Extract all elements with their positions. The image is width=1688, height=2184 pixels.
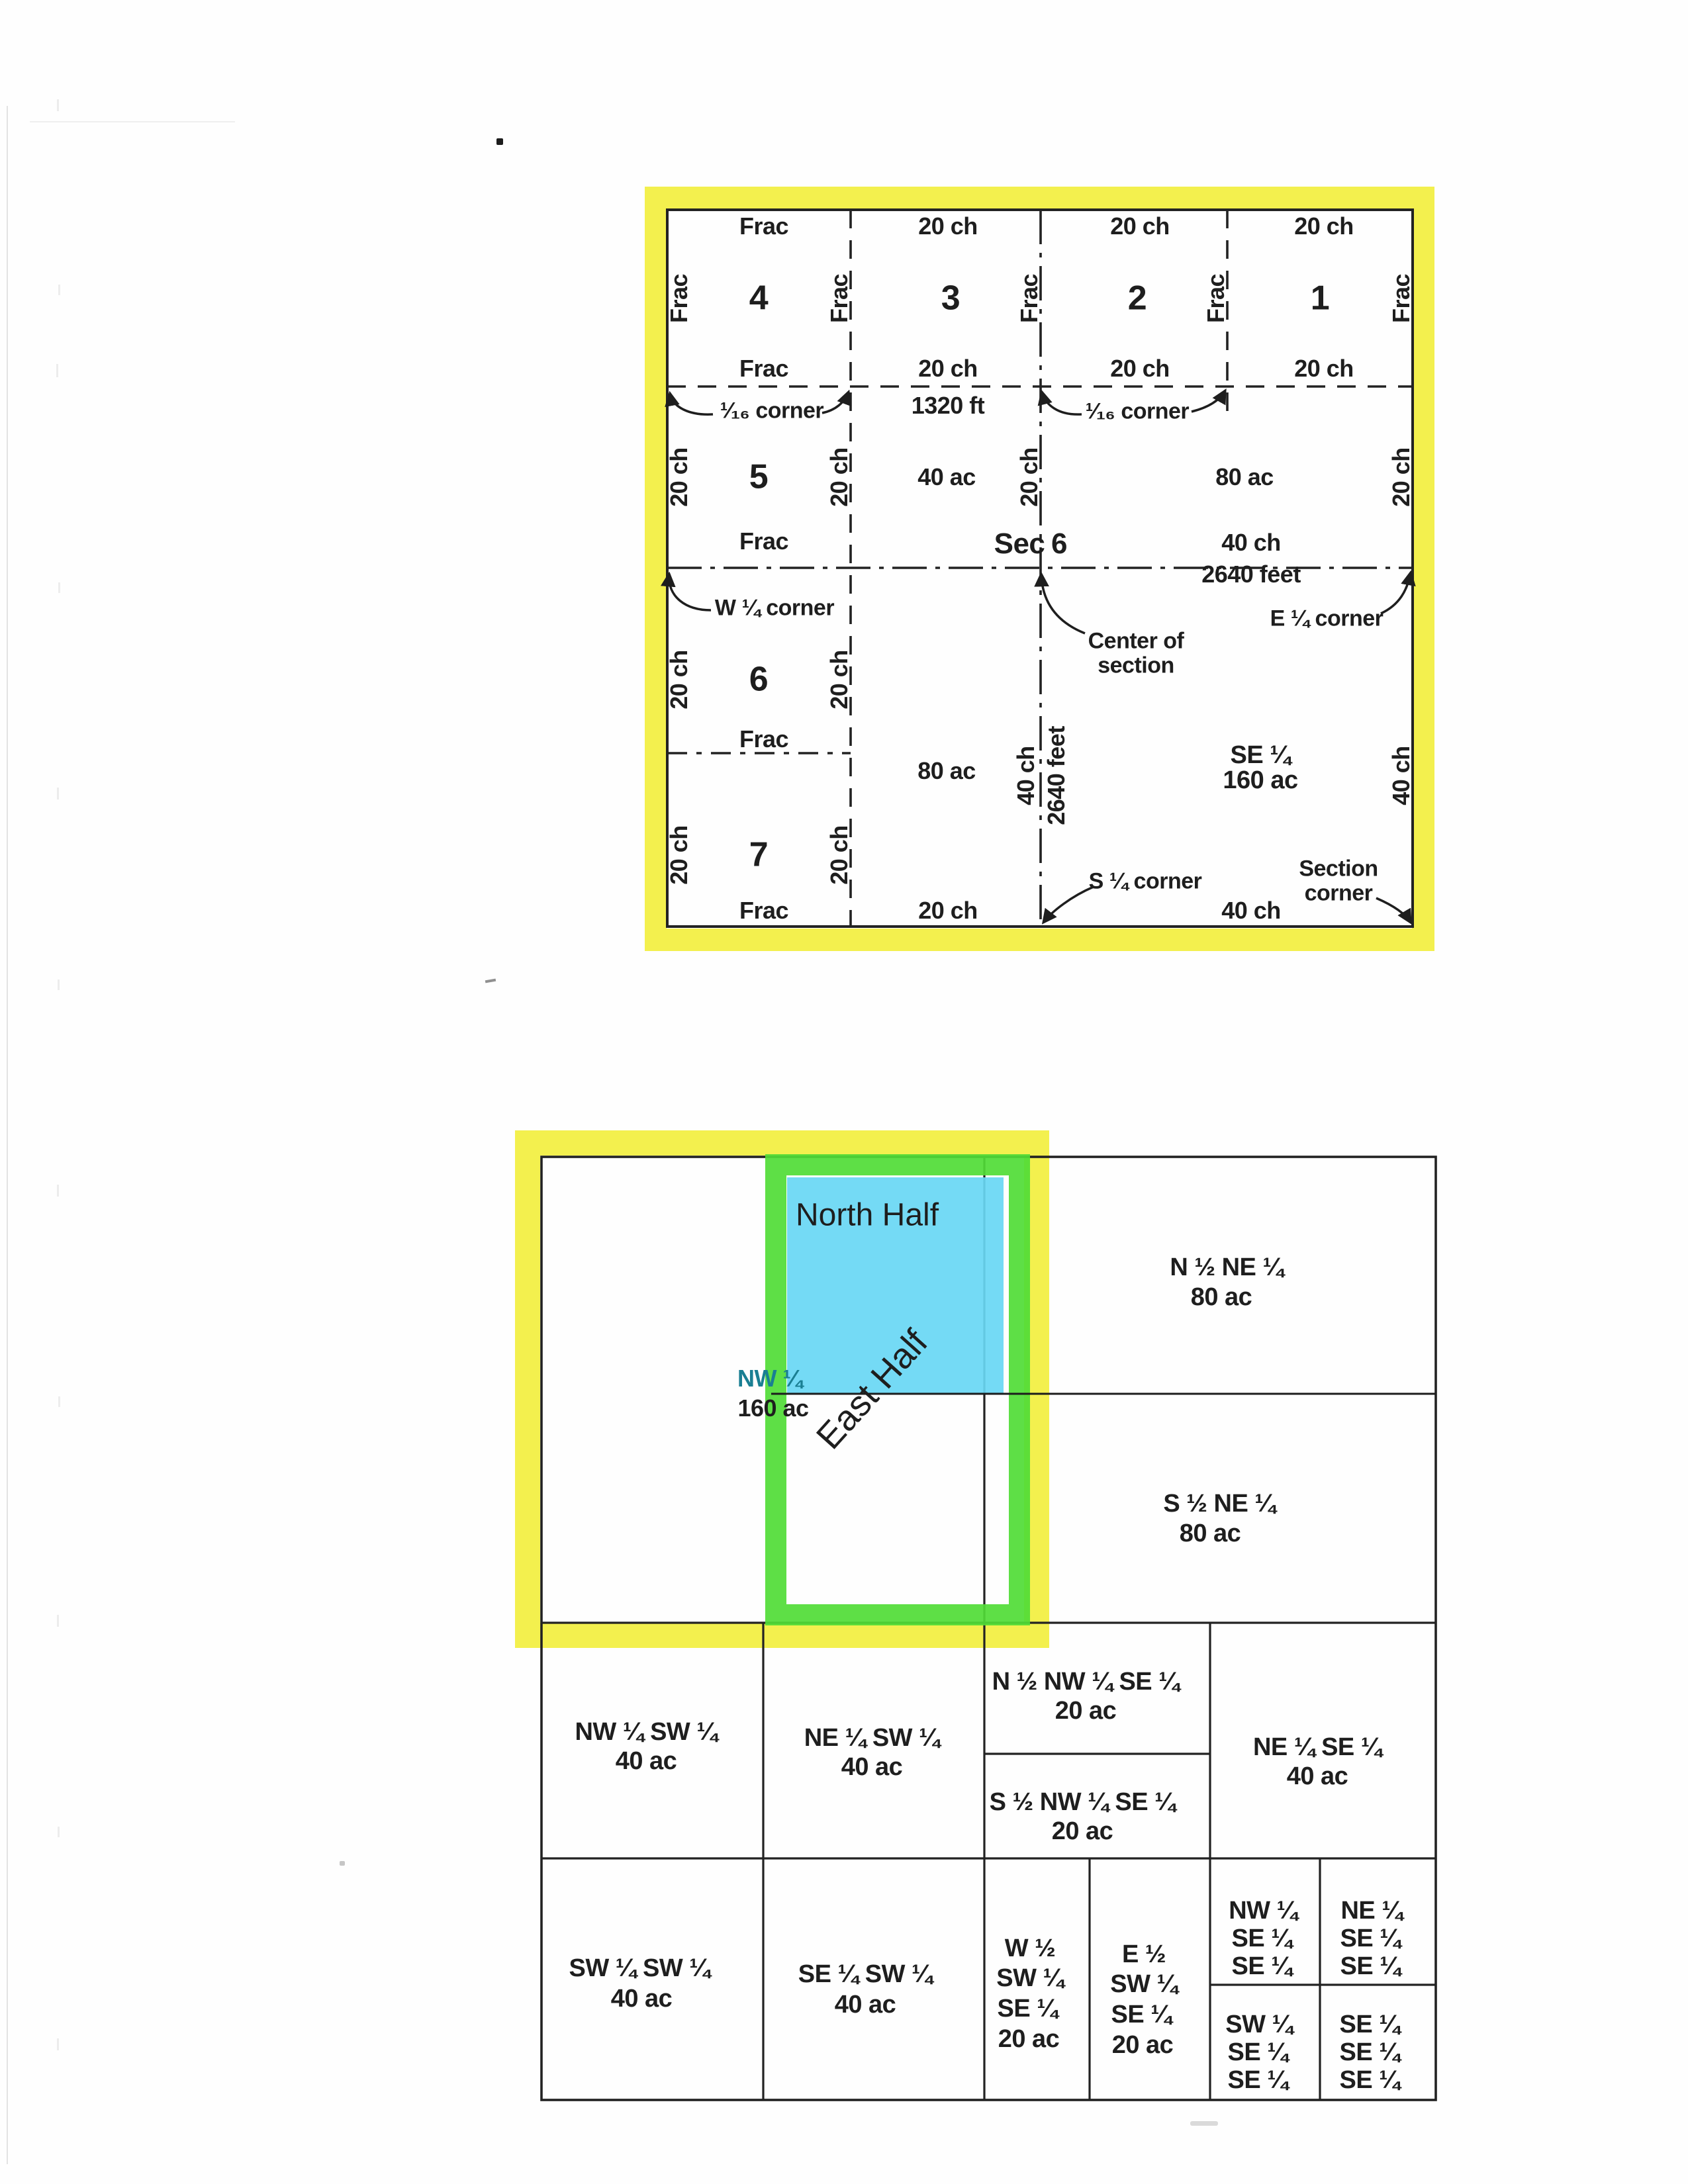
- label-80ac-ne: 80 ac: [1215, 464, 1274, 490]
- label-se-sw-acres: 40 ac: [835, 1991, 896, 2019]
- label-80ac-sw: 80 ac: [917, 758, 976, 784]
- label-20ch-top-lot3: 20 ch: [918, 213, 978, 240]
- label-20ch-vert-v3-row2: 20 ch: [1016, 447, 1043, 507]
- label-20ch-above-sixteenth-2: 20 ch: [1110, 355, 1170, 382]
- label-frac-above-sixteenth: Frac: [739, 355, 788, 382]
- label-lot-5: 5: [749, 458, 768, 496]
- label-sw-sese-2: SE ¼: [1228, 2039, 1288, 2067]
- label-lot-4: 4: [749, 279, 768, 317]
- label-ne-sw-acres: 40 ac: [841, 1754, 903, 1782]
- arrow-e-quarter-corner: [1381, 572, 1411, 614]
- label-section-corner: Section corner: [1295, 857, 1382, 907]
- label-20ch-above-sixteenth-3: 20 ch: [918, 355, 978, 382]
- label-1320ft: 1320 ft: [912, 392, 985, 419]
- label-20ch-vert-v2-row3: 20 ch: [826, 650, 853, 709]
- arrow-sixteenth-corner-e2: [1192, 390, 1225, 412]
- label-s2-ne: S ½ NE ¼: [1163, 1490, 1275, 1518]
- label-ne-sese-1: NE ¼: [1340, 1897, 1402, 1925]
- arrow-center-of-section: [1041, 574, 1085, 633]
- label-w2-line3: SE ¼: [998, 1995, 1058, 2023]
- label-frac-vert-v4: Frac: [1203, 274, 1229, 323]
- label-s2-ne-acres: 80 ac: [1180, 1520, 1241, 1548]
- label-e2-line1: E ½: [1122, 1941, 1166, 1969]
- label-ne-sese-2: SE ¼: [1340, 1925, 1401, 1953]
- label-w2-line2: SW ¼: [996, 1965, 1063, 1993]
- label-w-quarter-corner: W ¼ corner: [715, 596, 834, 620]
- arrow-s-quarter-corner: [1043, 887, 1094, 923]
- label-lot-3: 3: [941, 279, 960, 317]
- label-40ac: 40 ac: [917, 464, 976, 490]
- label-nw-sese-2: SE ¼: [1232, 1925, 1292, 1953]
- label-se-sese-1: SE ¼: [1340, 2011, 1400, 2039]
- label-40ch-bottom: 40 ch: [1221, 897, 1281, 924]
- label-20ch-above-sixteenth-1: 20 ch: [1294, 355, 1354, 382]
- label-sw-sese-1: SW ¼: [1225, 2011, 1292, 2039]
- label-40ch-vert-center: 40 ch: [1013, 746, 1039, 805]
- label-20ch-top-lot1: 20 ch: [1294, 213, 1354, 240]
- label-e2-acres: 20 ac: [1112, 2032, 1174, 2060]
- label-se-sese-2: SE ¼: [1340, 2039, 1400, 2067]
- label-ne-se-acres: 40 ac: [1287, 1763, 1348, 1791]
- arrow-sixteenth-corner-w1: [670, 393, 713, 414]
- label-n2-ne: N ½ NE ¼: [1170, 1254, 1283, 1282]
- scan-speck: [340, 1861, 345, 1866]
- label-frac-vert-west: Frac: [666, 274, 692, 323]
- label-20ch-vert-west-row3: 20 ch: [666, 650, 692, 709]
- label-e2-line3: SE ¼: [1111, 2001, 1172, 2029]
- scan-margin-mark: [58, 979, 60, 990]
- label-frac-above-center: Frac: [739, 528, 788, 555]
- label-w2-acres: 20 ac: [998, 2026, 1060, 2054]
- label-ne-se: NE ¼ SE ¼: [1253, 1734, 1382, 1762]
- label-n2-nw-se-acres: 20 ac: [1055, 1698, 1117, 1725]
- label-40ch-center: 40 ch: [1221, 529, 1281, 556]
- scan-margin-mark: [56, 364, 58, 377]
- fractional-section-diagram: Frac 20 ch 20 ch 20 ch Frac Frac Frac Fr…: [645, 187, 1439, 954]
- scanned-page: { "colors": { "highlight_yellow": "#f2ef…: [0, 0, 1688, 2184]
- label-nw-sw: NW ¼ SW ¼: [575, 1719, 717, 1747]
- label-se-sw: SE ¼ SW ¼: [798, 1961, 932, 1989]
- scan-smudge: [1190, 2121, 1218, 2126]
- label-2640feet-center: 2640 feet: [1201, 561, 1301, 588]
- label-frac-vert-east: Frac: [1388, 274, 1415, 323]
- label-nw-sw-acres: 40 ac: [616, 1748, 677, 1776]
- label-sixteenth-corner-west: ¹⁄₁₆ corner: [720, 398, 823, 423]
- label-ne-sese-3: SE ¼: [1340, 1953, 1401, 1981]
- label-frac-bottom: Frac: [739, 897, 788, 924]
- label-sec: Sec: [994, 528, 1045, 560]
- label-20ch-bottom: 20 ch: [918, 897, 978, 924]
- label-frac-top-lot4: Frac: [739, 213, 788, 240]
- label-north-half: North Half: [796, 1199, 939, 1234]
- scan-margin-mark: [57, 1185, 59, 1197]
- label-w2-line1: W ½: [1005, 1935, 1056, 1963]
- label-s2-nw-se-acres: 20 ac: [1052, 1818, 1113, 1846]
- arrow-sixteenth-corner-e1: [1042, 392, 1082, 414]
- label-lot-1: 1: [1311, 279, 1329, 317]
- scan-margin-mark: [57, 99, 59, 111]
- label-sw-sw: SW ¼ SW ¼: [569, 1955, 710, 1983]
- label-sec-number: 6: [1051, 528, 1067, 560]
- label-lot-6: 6: [749, 660, 768, 698]
- scan-margin-mark: [57, 2038, 59, 2050]
- label-2640feet-vert-center: 2640 feet: [1043, 726, 1070, 825]
- label-20ch-vert-east-row2: 20 ch: [1388, 447, 1415, 507]
- scan-margin-mark: [58, 1827, 60, 1837]
- scan-margin-mark: [58, 1396, 60, 1407]
- label-nw-sese-1: NW ¼: [1229, 1897, 1297, 1925]
- label-160ac: 160 ac: [1223, 767, 1297, 795]
- label-20ch-vert-west-row4: 20 ch: [666, 825, 692, 885]
- scan-edge-line: [7, 106, 8, 2164]
- label-s2-nw-se: S ½ NW ¼ SE ¼: [990, 1789, 1176, 1817]
- label-ne-sw: NE ¼ SW ¼: [804, 1725, 940, 1752]
- label-lot-7: 7: [749, 836, 768, 874]
- label-n2-ne-acres: 80 ac: [1191, 1284, 1252, 1312]
- scan-dot: [496, 138, 503, 145]
- scan-dash: [485, 979, 496, 983]
- label-20ch-vert-west-row2: 20 ch: [666, 447, 692, 507]
- label-40ch-vert-east: 40 ch: [1388, 746, 1415, 805]
- arrow-w-quarter-corner: [669, 574, 711, 610]
- label-n2-nw-se: N ½ NW ¼ SE ¼: [992, 1668, 1180, 1696]
- quarter-section-diagram: North Half East Half NW ¼ 160 ac N ½ NE …: [510, 1112, 1450, 2118]
- scan-margin-mark: [57, 1615, 59, 1627]
- scan-margin-mark: [58, 285, 60, 295]
- label-frac-vert-v3: Frac: [1016, 274, 1043, 323]
- label-20ch-vert-v2-row4: 20 ch: [826, 825, 853, 885]
- scan-margin-mark: [57, 788, 59, 799]
- label-sw-sw-acres: 40 ac: [611, 1985, 673, 2013]
- label-frac-vert-v2: Frac: [826, 274, 853, 323]
- label-20ch-vert-v2-row2: 20 ch: [826, 447, 853, 507]
- label-frac-above-lot7: Frac: [739, 726, 788, 752]
- label-e2-line2: SW ¼: [1110, 1971, 1177, 1999]
- label-lot-2: 2: [1128, 279, 1147, 317]
- label-sixteenth-corner-east: ¹⁄₁₆ corner: [1086, 399, 1189, 424]
- label-s-quarter-corner: S ¼ corner: [1089, 869, 1202, 893]
- scan-faint-line: [30, 121, 235, 122]
- label-nw-quarter: NW ¼: [737, 1365, 802, 1392]
- label-sw-sese-3: SE ¼: [1228, 2067, 1288, 2095]
- label-nw-160ac: 160 ac: [737, 1395, 808, 1422]
- label-20ch-top-lot2: 20 ch: [1110, 213, 1170, 240]
- label-e-quarter-corner: E ¼ corner: [1270, 606, 1383, 631]
- arrow-sixteenth-corner-w2: [822, 392, 849, 413]
- label-se-quarter: SE ¼: [1231, 742, 1291, 770]
- label-se-sese-3: SE ¼: [1340, 2067, 1400, 2095]
- label-center-of-section: Center of section: [1083, 629, 1189, 679]
- scan-margin-mark: [58, 582, 60, 593]
- label-nw-sese-3: SE ¼: [1232, 1953, 1292, 1981]
